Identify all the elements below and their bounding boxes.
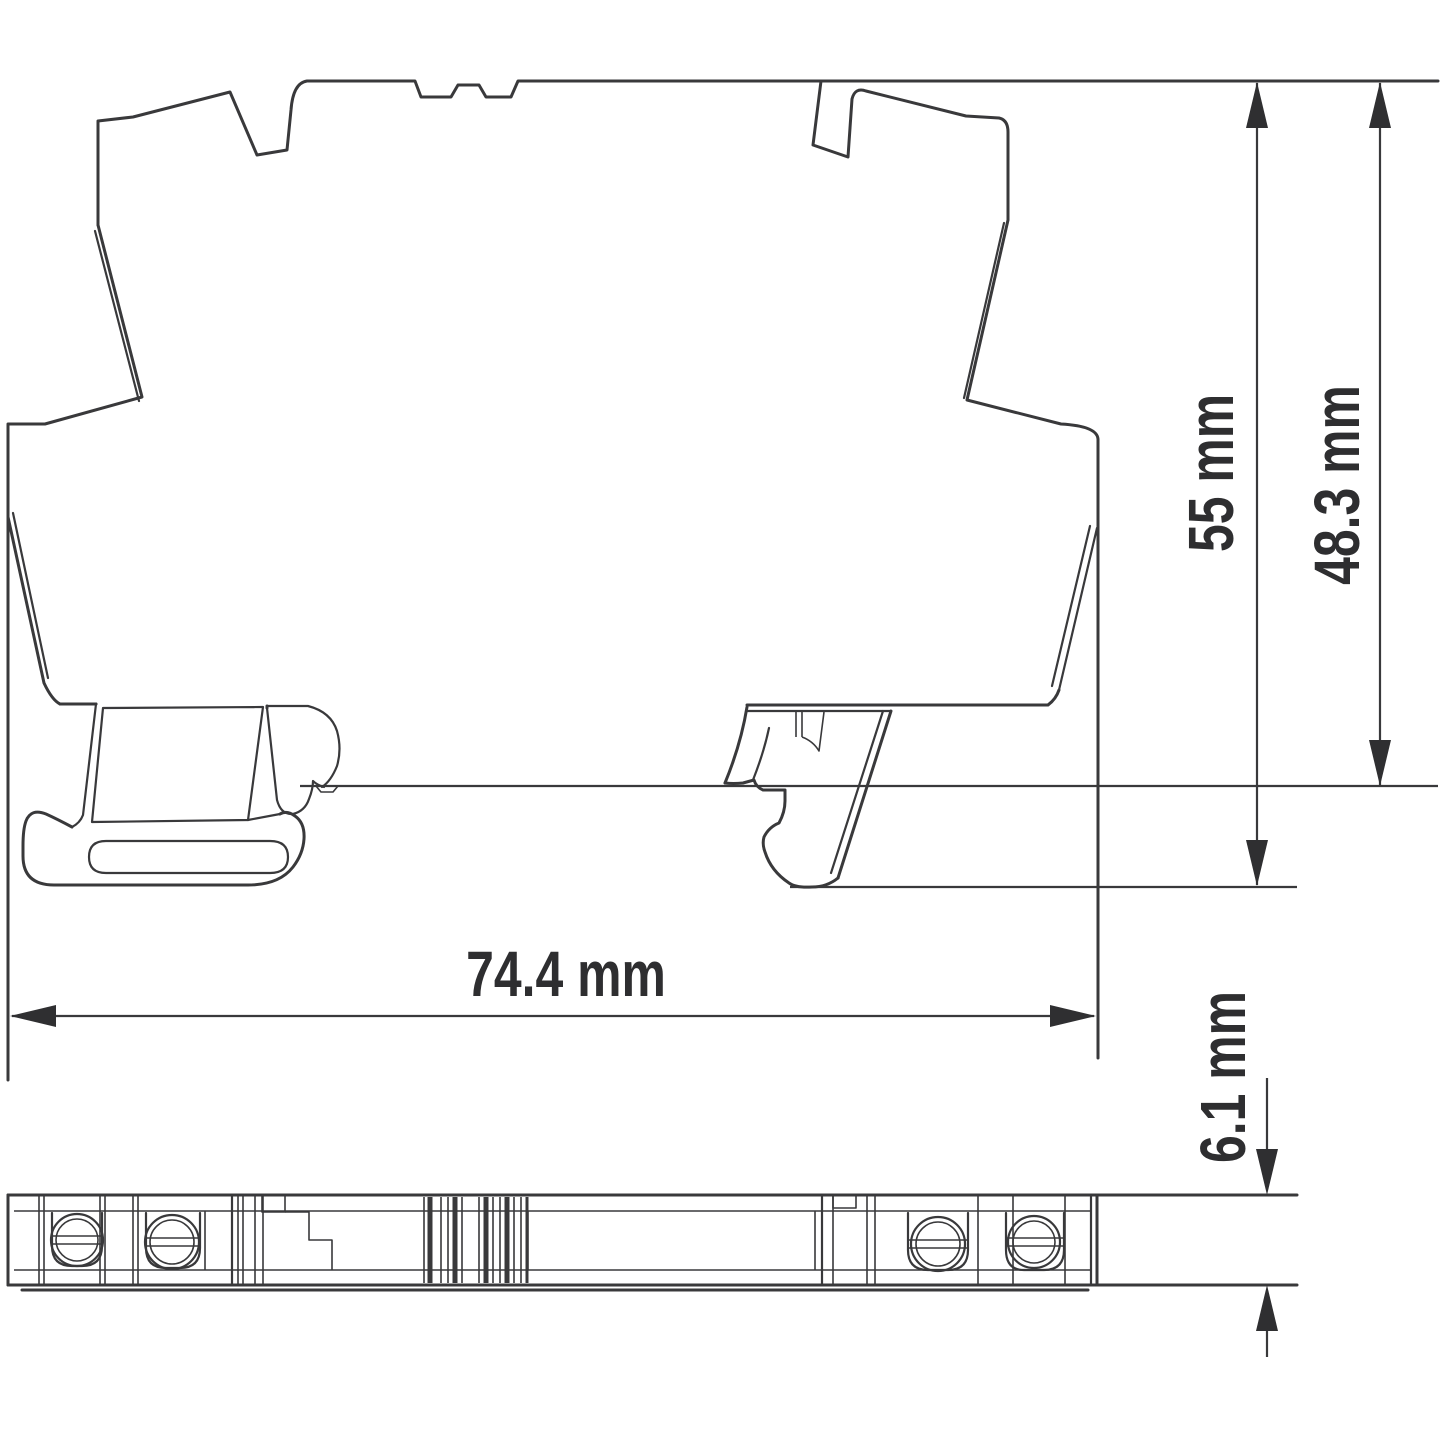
terminal-screw-2 — [145, 1213, 200, 1269]
dimension-drawing: 55 mm 48.3 mm 74.4 mm — [0, 0, 1440, 1440]
foot-right-slant-inner — [831, 711, 883, 873]
clip-slot — [92, 707, 263, 822]
terminal-screw-4 — [1006, 1213, 1064, 1270]
dimension-55mm: 55 mm — [1176, 82, 1268, 886]
foot-inner-step — [796, 712, 824, 751]
clip-jaw — [267, 706, 340, 787]
screw-head-icon — [51, 1214, 103, 1266]
foot-neck-inner — [753, 728, 769, 780]
screw-head-icon — [1008, 1216, 1060, 1268]
dimension-6-1mm: 6.1 mm — [1188, 991, 1278, 1357]
din-clip-left — [23, 704, 340, 885]
foot-hook — [725, 780, 838, 887]
dim-label-rail-height: 48.3 mm — [1302, 385, 1373, 585]
arrowhead-up-icon — [1246, 82, 1268, 128]
screw-head-icon — [145, 1215, 199, 1269]
dim-label-total-height: 55 mm — [1176, 394, 1247, 552]
arrowhead-up-icon — [1369, 82, 1391, 128]
lever-inner-edge — [95, 231, 139, 401]
screw-slot-icon — [52, 1236, 102, 1244]
clip-arm-right — [267, 708, 324, 814]
side-view — [8, 81, 1438, 1080]
foot-right-slant — [838, 711, 891, 878]
dim-label-depth: 74.4 mm — [466, 939, 666, 1010]
terminal-screw-1 — [51, 1213, 103, 1266]
screw-slot-icon — [146, 1238, 200, 1246]
notch-right — [833, 1195, 856, 1208]
clip-spring — [8, 517, 96, 704]
dimension-74-4mm: 74.4 mm — [10, 939, 1096, 1027]
terminal-screw-3 — [908, 1213, 968, 1271]
bottom-view — [8, 1195, 1297, 1290]
arrowhead-down-icon — [1246, 840, 1268, 886]
arrowhead-left-icon — [10, 1005, 56, 1027]
arrowhead-up-icon — [1256, 1285, 1278, 1331]
module-right-outline — [813, 81, 1098, 1058]
arrowhead-down-icon — [1369, 740, 1391, 786]
dim-label-width: 6.1 mm — [1188, 991, 1259, 1163]
screw-slot-icon — [908, 1240, 968, 1248]
module-top-outline — [98, 81, 1438, 225]
staircase-detail — [285, 1212, 332, 1270]
foot-neck — [725, 707, 747, 783]
clip-spring-inner — [13, 513, 48, 678]
notch-left — [262, 1195, 285, 1212]
clip-hook-slot — [89, 841, 288, 873]
screw-head-icon — [911, 1217, 965, 1271]
arrowhead-right-icon — [1050, 1005, 1096, 1027]
module-left-outline — [8, 225, 142, 1080]
din-foot-right — [725, 690, 1059, 887]
body-bottom-right — [747, 690, 1059, 705]
module-right-inner-edge — [964, 223, 1004, 398]
dimension-48-3mm: 48.3 mm — [1302, 82, 1391, 786]
corner-ridge — [1052, 526, 1097, 690]
clip-hook-top-edge — [248, 814, 280, 820]
technical-drawing-page: 55 mm 48.3 mm 74.4 mm — [0, 0, 1440, 1440]
